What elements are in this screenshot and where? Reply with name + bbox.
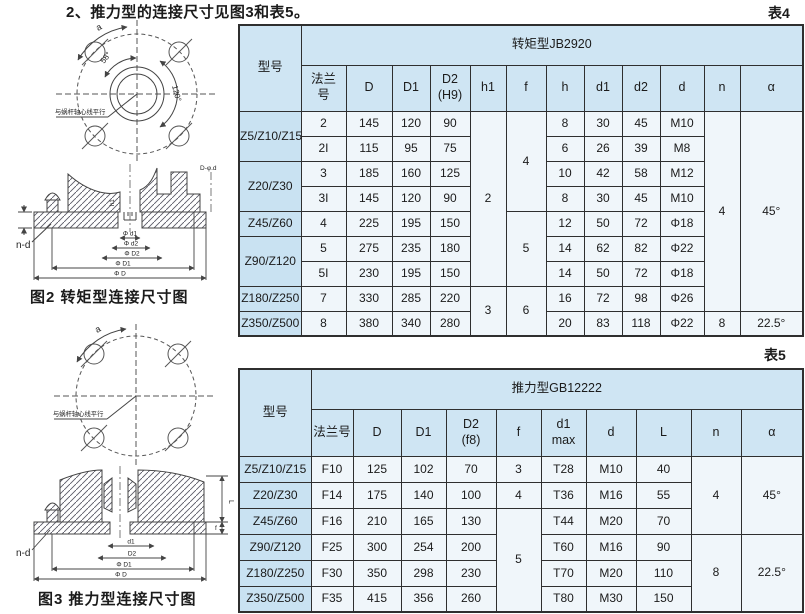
data-cell: 330 <box>346 286 392 311</box>
data-cell: 8 <box>546 186 584 211</box>
data-cell: 165 <box>401 508 446 534</box>
data-cell: 298 <box>401 560 446 586</box>
data-cell: 115 <box>346 136 392 161</box>
table4-label: 表4 <box>768 3 790 23</box>
model-cell: Z180/Z250 <box>239 286 301 311</box>
column-header: α <box>741 409 803 456</box>
data-cell: 22.5° <box>741 534 803 612</box>
data-cell: 75 <box>430 136 470 161</box>
dim-d1: d1 <box>127 539 135 546</box>
data-cell: 3 <box>496 456 541 482</box>
data-cell: 340 <box>392 311 430 336</box>
column-header: d <box>586 409 636 456</box>
data-cell: Φ26 <box>660 286 704 311</box>
column-header: D1 <box>392 65 430 111</box>
data-cell: 7 <box>301 286 346 311</box>
data-cell: F25 <box>311 534 353 560</box>
torque-dimension-table: 型号转矩型JB2920法兰 号DD1D2 (H9)h1fhd1d2dnαZ5/Z… <box>238 24 804 337</box>
model-cell: Z5/Z10/Z15 <box>239 456 311 482</box>
column-header: D2 (f8) <box>446 409 496 456</box>
data-cell: 45 <box>622 186 660 211</box>
data-cell: F35 <box>311 586 353 612</box>
data-cell: 39 <box>622 136 660 161</box>
figure3-cross-section: n-d L f d1 D2 Φ D1 Φ D <box>4 466 236 588</box>
data-cell: 195 <box>392 261 430 286</box>
data-cell: T44 <box>541 508 586 534</box>
data-cell: 16 <box>546 286 584 311</box>
data-cell: 4 <box>506 111 546 211</box>
h1-label: h1 <box>110 199 116 206</box>
data-cell: 130 <box>446 508 496 534</box>
model-cell: Z5/Z10/Z15 <box>239 111 301 161</box>
column-header: 法兰 号 <box>301 65 346 111</box>
data-cell: 5 <box>301 236 346 261</box>
data-cell: T60 <box>541 534 586 560</box>
data-cell: 185 <box>346 161 392 186</box>
dim-phi-D1: Φ D1 <box>115 261 131 268</box>
data-cell: 40 <box>636 456 691 482</box>
data-cell: 10 <box>546 161 584 186</box>
nd-label: n-d <box>16 548 30 559</box>
data-cell: 300 <box>353 534 401 560</box>
L-label: L <box>227 500 234 504</box>
data-cell: 118 <box>622 311 660 336</box>
column-header: 法兰号 <box>311 409 353 456</box>
data-cell: 62 <box>584 236 622 261</box>
data-cell: 72 <box>584 286 622 311</box>
parallel-note: 与蜗杆轴心线平行 <box>55 107 106 116</box>
data-cell: F10 <box>311 456 353 482</box>
data-cell: 150 <box>636 586 691 612</box>
data-cell: T36 <box>541 482 586 508</box>
dim-label-a: a <box>94 22 103 33</box>
data-cell: 5I <box>301 261 346 286</box>
column-header: h1 <box>470 65 506 111</box>
data-cell: 2 <box>470 111 506 286</box>
nd-label: n-d <box>16 240 30 251</box>
column-header: n <box>691 409 741 456</box>
column-header: n <box>704 65 740 111</box>
data-cell: 225 <box>346 211 392 236</box>
data-cell: 254 <box>401 534 446 560</box>
data-cell: 356 <box>401 586 446 612</box>
column-header: f <box>496 409 541 456</box>
data-cell: 98 <box>622 286 660 311</box>
data-cell: 102 <box>401 456 446 482</box>
model-cell: Z45/Z60 <box>239 211 301 236</box>
data-cell: 4 <box>704 111 740 311</box>
data-cell: 120 <box>392 186 430 211</box>
figure3-caption: 图3 推力型连接尺寸图 <box>38 588 197 609</box>
model-cell: Z20/Z30 <box>239 161 301 211</box>
data-cell: 280 <box>430 311 470 336</box>
data-cell: 140 <box>401 482 446 508</box>
torque-flange-front-view: a 58° 120° 与蜗杆轴心线平行 <box>52 16 220 164</box>
data-cell: 5 <box>506 211 546 286</box>
column-header: 型号 <box>239 369 311 456</box>
data-cell: 3I <box>301 186 346 211</box>
column-header: d <box>660 65 704 111</box>
dim-label-58deg: 58° <box>98 50 113 65</box>
data-cell: 14 <box>546 261 584 286</box>
data-cell: 210 <box>353 508 401 534</box>
column-header: 推力型GB12222 <box>311 369 803 409</box>
data-cell: 95 <box>392 136 430 161</box>
data-cell: Φ22 <box>660 311 704 336</box>
data-cell: 72 <box>622 261 660 286</box>
parallel-note: 与蜗杆轴心线平行 <box>53 409 104 418</box>
dim-phi-D2: Φ D2 <box>124 251 140 258</box>
data-cell: 45° <box>741 456 803 534</box>
data-cell: M8 <box>660 136 704 161</box>
data-cell: 12 <box>546 211 584 236</box>
data-cell: 200 <box>446 534 496 560</box>
data-cell: 160 <box>392 161 430 186</box>
data-cell: 3 <box>301 161 346 186</box>
table-row: 型号推力型GB12222 <box>239 369 803 409</box>
data-cell: 90 <box>430 186 470 211</box>
dim-phi-D: Φ D <box>114 271 126 278</box>
table5-label: 表5 <box>764 345 786 365</box>
data-cell: 260 <box>446 586 496 612</box>
column-header: D1 <box>401 409 446 456</box>
column-header: D <box>353 409 401 456</box>
column-header: α <box>740 65 803 111</box>
column-header: h <box>546 65 584 111</box>
data-cell: 90 <box>636 534 691 560</box>
data-cell: 4 <box>496 482 541 508</box>
data-cell: 150 <box>430 211 470 236</box>
column-header: D2 (H9) <box>430 65 470 111</box>
data-cell: 145 <box>346 186 392 211</box>
data-cell: 3 <box>470 286 506 336</box>
data-cell: 145 <box>346 111 392 136</box>
data-cell: 55 <box>636 482 691 508</box>
column-header: d2 <box>622 65 660 111</box>
data-cell: 175 <box>353 482 401 508</box>
data-cell: 50 <box>584 261 622 286</box>
data-cell: F30 <box>311 560 353 586</box>
data-cell: T70 <box>541 560 586 586</box>
data-cell: 275 <box>346 236 392 261</box>
model-cell: Z20/Z30 <box>239 482 311 508</box>
data-cell: M20 <box>586 508 636 534</box>
dim-label-a: a <box>93 324 102 335</box>
data-cell: M10 <box>586 456 636 482</box>
data-cell: Φ18 <box>660 261 704 286</box>
data-cell: 30 <box>584 186 622 211</box>
data-cell: 70 <box>636 508 691 534</box>
data-cell: M16 <box>586 534 636 560</box>
data-cell: Φ18 <box>660 211 704 236</box>
table-row: 法兰号DD1D2 (f8)fd1 maxdLnα <box>239 409 803 456</box>
data-cell: 4 <box>691 456 741 534</box>
column-header: L <box>636 409 691 456</box>
data-cell: F14 <box>311 482 353 508</box>
data-cell: T28 <box>541 456 586 482</box>
data-cell: 2I <box>301 136 346 161</box>
data-cell: M16 <box>586 482 636 508</box>
data-cell: 120 <box>392 111 430 136</box>
data-cell: 22.5° <box>740 311 803 336</box>
data-cell: 100 <box>446 482 496 508</box>
column-header: f <box>506 65 546 111</box>
data-cell: M20 <box>586 560 636 586</box>
data-cell: 42 <box>584 161 622 186</box>
data-cell: 8 <box>301 311 346 336</box>
data-cell: M30 <box>586 586 636 612</box>
f-label: f <box>215 525 217 532</box>
table-row: 法兰 号DD1D2 (H9)h1fhd1d2dnα <box>239 65 803 111</box>
dim-label-120deg: 120° <box>170 84 183 102</box>
data-cell: 8 <box>704 311 740 336</box>
data-cell: 8 <box>691 534 741 612</box>
data-cell: 20 <box>546 311 584 336</box>
dim-D2: D2 <box>128 551 137 558</box>
data-cell: 70 <box>446 456 496 482</box>
model-cell: Z180/Z250 <box>239 560 311 586</box>
data-cell: 230 <box>446 560 496 586</box>
column-header: 转矩型JB2920 <box>301 25 803 65</box>
data-cell: 415 <box>353 586 401 612</box>
data-cell: 350 <box>353 560 401 586</box>
data-cell: Φ22 <box>660 236 704 261</box>
data-cell: 82 <box>622 236 660 261</box>
data-cell: 5 <box>496 508 541 612</box>
data-cell: 58 <box>622 161 660 186</box>
data-cell: 90 <box>430 111 470 136</box>
dim-phi-D1: Φ D1 <box>116 562 132 569</box>
data-cell: 285 <box>392 286 430 311</box>
thrust-dimension-table: 型号推力型GB12222法兰号DD1D2 (f8)fd1 maxdLnαZ5/Z… <box>238 368 804 613</box>
data-cell: 72 <box>622 211 660 236</box>
data-cell: 180 <box>430 236 470 261</box>
data-cell: 195 <box>392 211 430 236</box>
data-cell: 45 <box>622 111 660 136</box>
column-header: d1 max <box>541 409 586 456</box>
data-cell: 6 <box>546 136 584 161</box>
data-cell: T80 <box>541 586 586 612</box>
data-cell: 150 <box>430 261 470 286</box>
data-cell: 14 <box>546 236 584 261</box>
data-cell: M10 <box>660 111 704 136</box>
dim-phi-d2: Φ d2 <box>124 241 139 248</box>
data-cell: 83 <box>584 311 622 336</box>
column-header: d1 <box>584 65 622 111</box>
data-cell: 30 <box>584 111 622 136</box>
figure2-caption: 图2 转矩型连接尺寸图 <box>30 286 189 307</box>
data-cell: 4 <box>301 211 346 236</box>
model-cell: Z350/Z500 <box>239 311 301 336</box>
column-header: 型号 <box>239 25 301 111</box>
model-cell: Z45/Z60 <box>239 508 311 534</box>
table-row: Z5/Z10/Z152145120902483045M10445° <box>239 111 803 136</box>
data-cell: M12 <box>660 161 704 186</box>
data-cell: 220 <box>430 286 470 311</box>
data-cell: 8 <box>546 111 584 136</box>
data-cell: 235 <box>392 236 430 261</box>
column-header: D <box>346 65 392 111</box>
model-cell: Z350/Z500 <box>239 586 311 612</box>
data-cell: 45° <box>740 111 803 311</box>
thrust-flange-front-view: a 与蜗杆轴心线平行 <box>50 320 220 468</box>
document-page: 2、推力型的连接尺寸见图3和表5。 表4 表5 <box>0 0 805 614</box>
data-cell: F16 <box>311 508 353 534</box>
dphid-label: D-φ.d <box>200 165 217 172</box>
data-cell: 6 <box>506 286 546 336</box>
model-cell: Z90/Z120 <box>239 534 311 560</box>
dim-phi-D: Φ D <box>115 572 127 579</box>
data-cell: 380 <box>346 311 392 336</box>
data-cell: M10 <box>660 186 704 211</box>
data-cell: 110 <box>636 560 691 586</box>
figure2-cross-section: n-d h1 D-φ.d Φ d1 Φ d2 Φ D2 Φ D1 Φ D <box>4 162 236 288</box>
data-cell: 125 <box>353 456 401 482</box>
table-row: Z5/Z10/Z15F10125102703T28M1040445° <box>239 456 803 482</box>
data-cell: 26 <box>584 136 622 161</box>
hatched-body <box>34 168 206 228</box>
data-cell: 2 <box>301 111 346 136</box>
dim-phi-d1: Φ d1 <box>123 231 138 238</box>
data-cell: 230 <box>346 261 392 286</box>
data-cell: 125 <box>430 161 470 186</box>
table-row: 型号转矩型JB2920 <box>239 25 803 65</box>
model-cell: Z90/Z120 <box>239 236 301 286</box>
data-cell: 50 <box>584 211 622 236</box>
